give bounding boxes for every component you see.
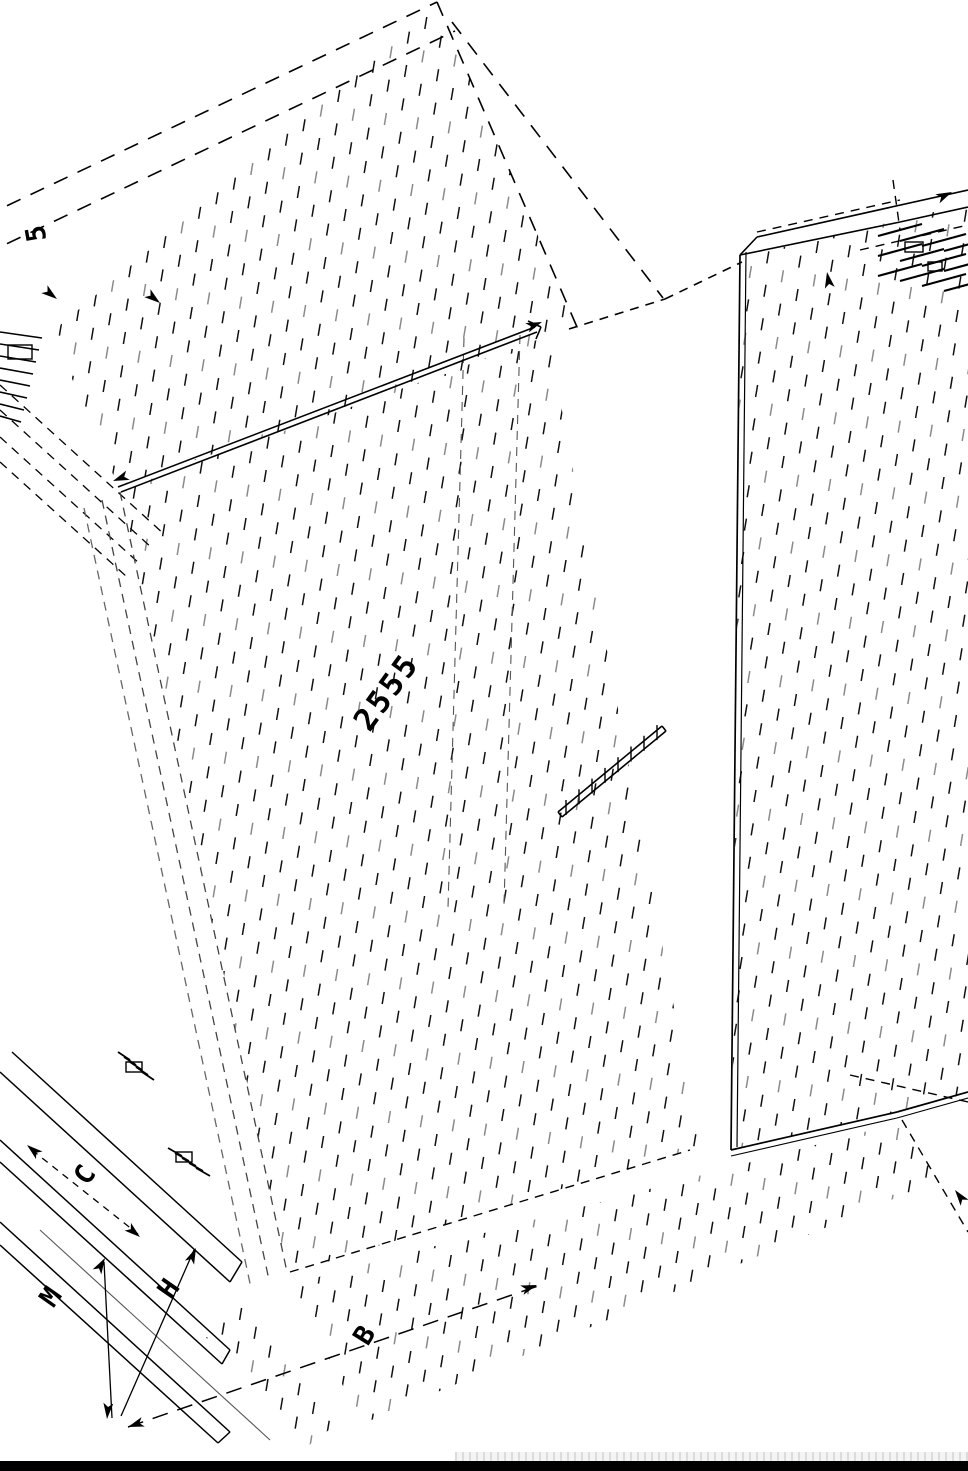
isometric-cabinet-drawing: 5 2555 C M H B <box>0 0 968 1471</box>
technical-drawing-page: 5 2555 C M H B <box>0 0 968 1471</box>
hatch-region <box>187 1283 349 1471</box>
panel-edges <box>0 190 968 1443</box>
arrowhead-icon <box>822 271 835 288</box>
footer-dotted-strip <box>455 1452 968 1461</box>
hatch-region <box>32 0 590 518</box>
arrowhead-icon <box>935 187 954 203</box>
hidden-edge-dashed-lines <box>0 2 968 1427</box>
dimension-label-m: M <box>34 1282 69 1313</box>
dimension-label-c: C <box>68 1160 103 1191</box>
arrowhead-icon <box>41 285 60 303</box>
dimension-label-length: 2555 <box>347 646 427 737</box>
dimension-label-b: B <box>347 1320 382 1350</box>
hatch-region <box>92 324 716 1296</box>
arrowhead-icon <box>951 1187 968 1206</box>
footer-black-bar <box>0 1461 968 1471</box>
arrowhead-icon <box>24 1141 43 1159</box>
hatch-region <box>277 1109 966 1447</box>
arrowhead-icon <box>126 1417 144 1432</box>
step-number-label: 5 <box>20 223 53 244</box>
hatch-region <box>717 191 968 1172</box>
